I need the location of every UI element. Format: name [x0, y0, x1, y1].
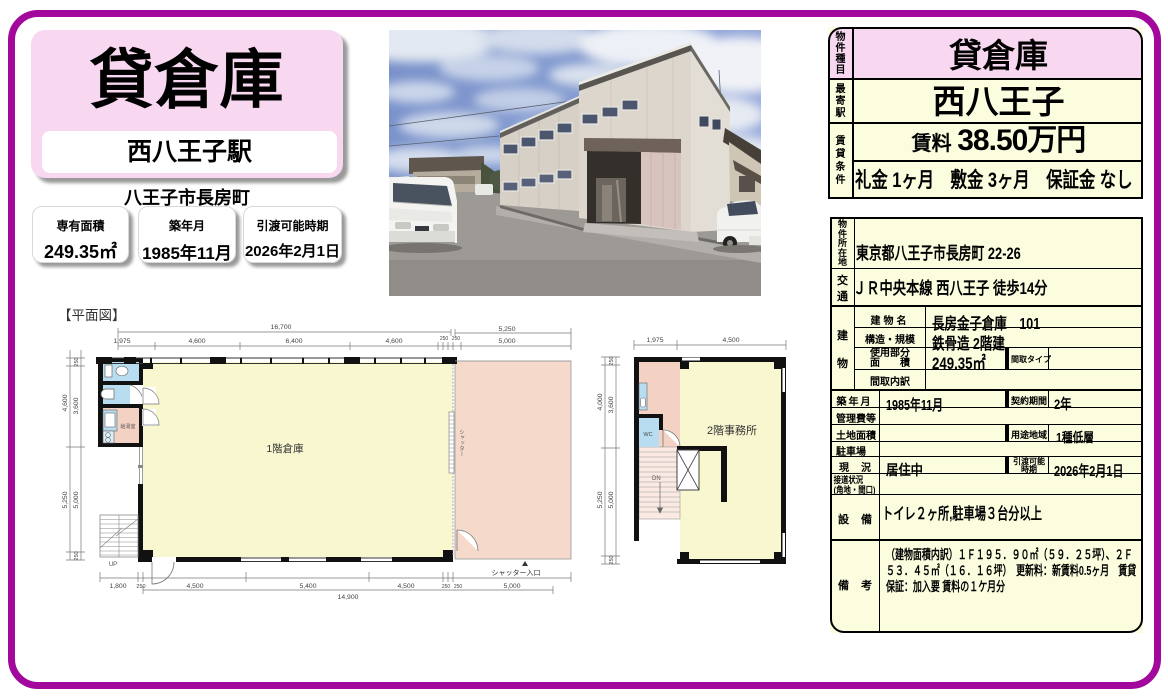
svg-text:シャッター入口: シャッター入口 [492, 568, 541, 577]
svg-text:5,400: 5,400 [299, 583, 316, 590]
svg-text:250: 250 [609, 555, 615, 564]
svg-text:4,600: 4,600 [62, 394, 69, 411]
svg-text:4,600: 4,600 [188, 338, 205, 345]
svg-text:250: 250 [74, 357, 80, 366]
svg-text:250: 250 [136, 584, 145, 590]
svg-text:250: 250 [609, 356, 615, 365]
svg-text:250: 250 [74, 551, 80, 560]
svg-text:5,000: 5,000 [503, 583, 520, 590]
svg-text:3,600: 3,600 [73, 397, 80, 414]
svg-text:1階倉庫: 1階倉庫 [266, 442, 304, 455]
svg-text:16,700: 16,700 [271, 324, 292, 331]
svg-text:給湯室: 給湯室 [120, 423, 135, 430]
svg-text:1,975: 1,975 [113, 338, 130, 345]
svg-text:4,000: 4,000 [597, 393, 604, 410]
svg-text:5,250: 5,250 [498, 326, 515, 333]
svg-text:5,250: 5,250 [62, 491, 69, 508]
svg-text:3,600: 3,600 [608, 396, 615, 413]
svg-text:【平面図】: 【平面図】 [58, 308, 126, 323]
svg-text:250: 250 [454, 584, 463, 590]
svg-text:250: 250 [452, 336, 461, 342]
svg-text:5,000: 5,000 [608, 491, 615, 508]
svg-text:5,000: 5,000 [73, 491, 80, 508]
svg-text:5,000: 5,000 [498, 338, 515, 345]
svg-text:シャッター: シャッター [458, 429, 465, 457]
svg-text:5,250: 5,250 [597, 491, 604, 508]
svg-text:4,500: 4,500 [186, 583, 203, 590]
svg-text:4,500: 4,500 [397, 583, 414, 590]
svg-text:WC: WC [643, 432, 652, 438]
svg-text:1,800: 1,800 [109, 583, 126, 590]
svg-text:1,975: 1,975 [646, 337, 663, 344]
svg-text:4,600: 4,600 [385, 338, 402, 345]
svg-text:6,400: 6,400 [285, 338, 302, 345]
svg-text:DN: DN [652, 476, 661, 482]
svg-text:14,900: 14,900 [338, 594, 359, 601]
svg-text:250: 250 [440, 336, 449, 342]
svg-text:UP: UP [109, 562, 117, 568]
svg-text:2階事務所: 2階事務所 [707, 423, 757, 437]
svg-text:4,500: 4,500 [722, 337, 739, 344]
svg-text:250: 250 [442, 584, 451, 590]
